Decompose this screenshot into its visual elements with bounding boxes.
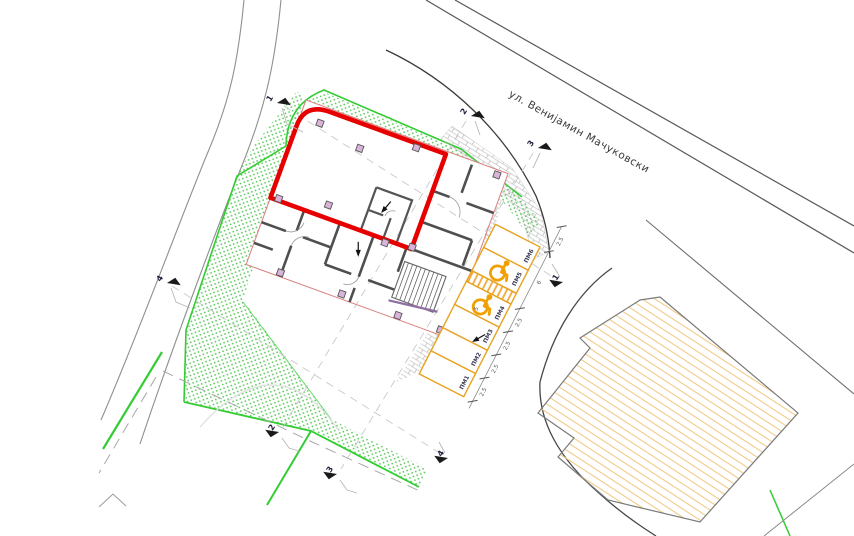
svg-text:1: 1 bbox=[264, 93, 275, 103]
site-plan-page: ПМ6 ПМ5 ПМ4 ПМ3 ПМ2 ПМ1 2.5 6 2.5 2.5 2.… bbox=[0, 0, 854, 536]
dim-stall: 2.5 bbox=[503, 340, 513, 351]
boundary-corner-south bbox=[267, 431, 311, 505]
axis-marker-3-bottom: 3 bbox=[323, 465, 357, 493]
chevron-mark bbox=[99, 494, 126, 507]
axis-marker-3-top: 3 bbox=[525, 139, 551, 168]
svg-text:2: 2 bbox=[458, 107, 469, 116]
axis-marker-2-top: 2 bbox=[458, 107, 484, 135]
axis-marker-4-bottom: 4 bbox=[434, 442, 448, 464]
dim-stall: 2.5 bbox=[515, 317, 525, 328]
dashed-line-southwest bbox=[99, 377, 156, 473]
adjacent-building bbox=[538, 297, 798, 522]
axis-marker-1-right: 1 bbox=[549, 264, 563, 288]
site-plan-canvas: ПМ6 ПМ5 ПМ4 ПМ3 ПМ2 ПМ1 2.5 6 2.5 2.5 2.… bbox=[0, 0, 854, 536]
dim-stall: 2.5 bbox=[491, 363, 501, 374]
axis-marker-4-left: 4 bbox=[154, 273, 190, 308]
dim-sidewalk: 2.5 bbox=[556, 236, 566, 247]
dim-stall: 2.5 bbox=[479, 387, 489, 398]
svg-text:3: 3 bbox=[525, 139, 536, 148]
boundary-southwest-line bbox=[103, 352, 162, 449]
dim-group: 6 bbox=[536, 279, 543, 285]
corner-road-line bbox=[764, 464, 854, 536]
street-name-label: ул. Венијамин Мачуковски bbox=[507, 88, 652, 176]
